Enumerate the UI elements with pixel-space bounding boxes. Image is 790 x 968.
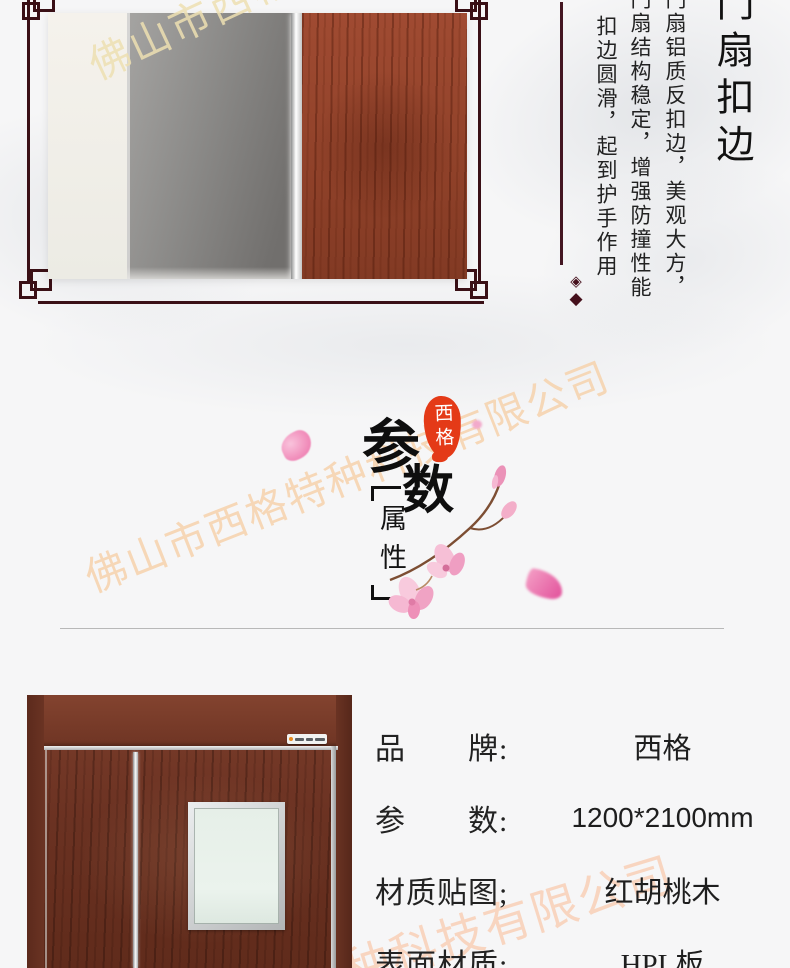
attribute-bracket: 属性	[371, 486, 405, 600]
bracket-top	[371, 486, 401, 501]
feature-text-column: 门扇结构稳定，增强防撞性能	[625, 0, 655, 300]
feature-text-column: 扣边圆滑，起到护手作用	[591, 15, 621, 279]
sticker-logo-dot	[289, 737, 293, 741]
frame-line-right	[478, 0, 481, 284]
sticker-text-bar	[315, 738, 325, 741]
spec-value: HPL板	[535, 941, 790, 968]
spec-label: 表面材质:	[360, 940, 535, 968]
spec-label: 品 牌:	[360, 724, 535, 768]
spec-row-size: 参 数: 1200*2100mm	[360, 782, 790, 854]
aluminum-trim-top	[44, 746, 338, 750]
vertical-rule	[560, 2, 563, 265]
spec-label: 材质贴图;	[360, 868, 535, 912]
spec-value: 西格	[535, 725, 790, 767]
params-title-char: 数	[402, 466, 454, 518]
section-divider	[60, 628, 724, 629]
diamond-filled-icon: ◆	[566, 289, 586, 309]
spec-list: 品 牌: 西格 参 数: 1200*2100mm 材质贴图; 红胡桃木 表面材质…	[360, 700, 790, 968]
aluminum-trim-left	[45, 750, 47, 968]
brand-watermark: 佛山市西格特种科技有限公司	[75, 343, 617, 604]
aluminum-divider-strip	[133, 752, 138, 968]
frame-line-left	[27, 0, 30, 284]
spec-value: 1200*2100mm	[535, 802, 790, 834]
section-title-vertical: 门扇扣边	[704, 0, 759, 171]
petal-decoration	[472, 420, 482, 429]
photo-wood-panel	[302, 13, 467, 279]
product-detail-page: 佛山市西格特种科技有限公司 佛山市西格特种科技有限公司 佛山市西格特种科技有限公…	[0, 0, 790, 968]
photo-edge-strip	[291, 13, 302, 279]
attribute-label: 属性	[377, 504, 404, 582]
door-edge-photo	[48, 13, 467, 279]
spec-row-texture: 材质贴图; 红胡桃木	[360, 854, 790, 926]
petal-decoration	[524, 568, 565, 601]
spec-value: 红胡桃木	[535, 869, 790, 911]
product-door-photo	[27, 695, 352, 968]
spec-row-surface: 表面材质: HPL板	[360, 926, 790, 968]
door-jamb-left	[27, 695, 44, 968]
sticker-text-bar	[295, 738, 304, 741]
spec-row-brand: 品 牌: 西格	[360, 710, 790, 782]
brand-seal: 西格	[423, 395, 462, 458]
sticker-text-bar	[306, 738, 313, 741]
feature-text-column: 门扇铝质反扣边，美观大方，	[660, 0, 690, 300]
window-glass	[194, 808, 279, 924]
bracket-bottom	[371, 585, 401, 600]
brand-sticker	[287, 734, 327, 744]
spec-label: 参 数:	[360, 796, 535, 840]
diamond-outline-icon: ◈	[566, 272, 586, 290]
photo-aluminum-panel	[127, 13, 291, 279]
door-vision-window	[188, 802, 285, 930]
photo-wall-band	[48, 13, 127, 279]
door-jamb-right	[336, 695, 352, 968]
frame-line-bottom	[38, 301, 484, 304]
aluminum-trim-right	[331, 746, 336, 968]
petal-decoration	[277, 427, 317, 465]
brand-seal-text: 西格	[432, 403, 453, 452]
